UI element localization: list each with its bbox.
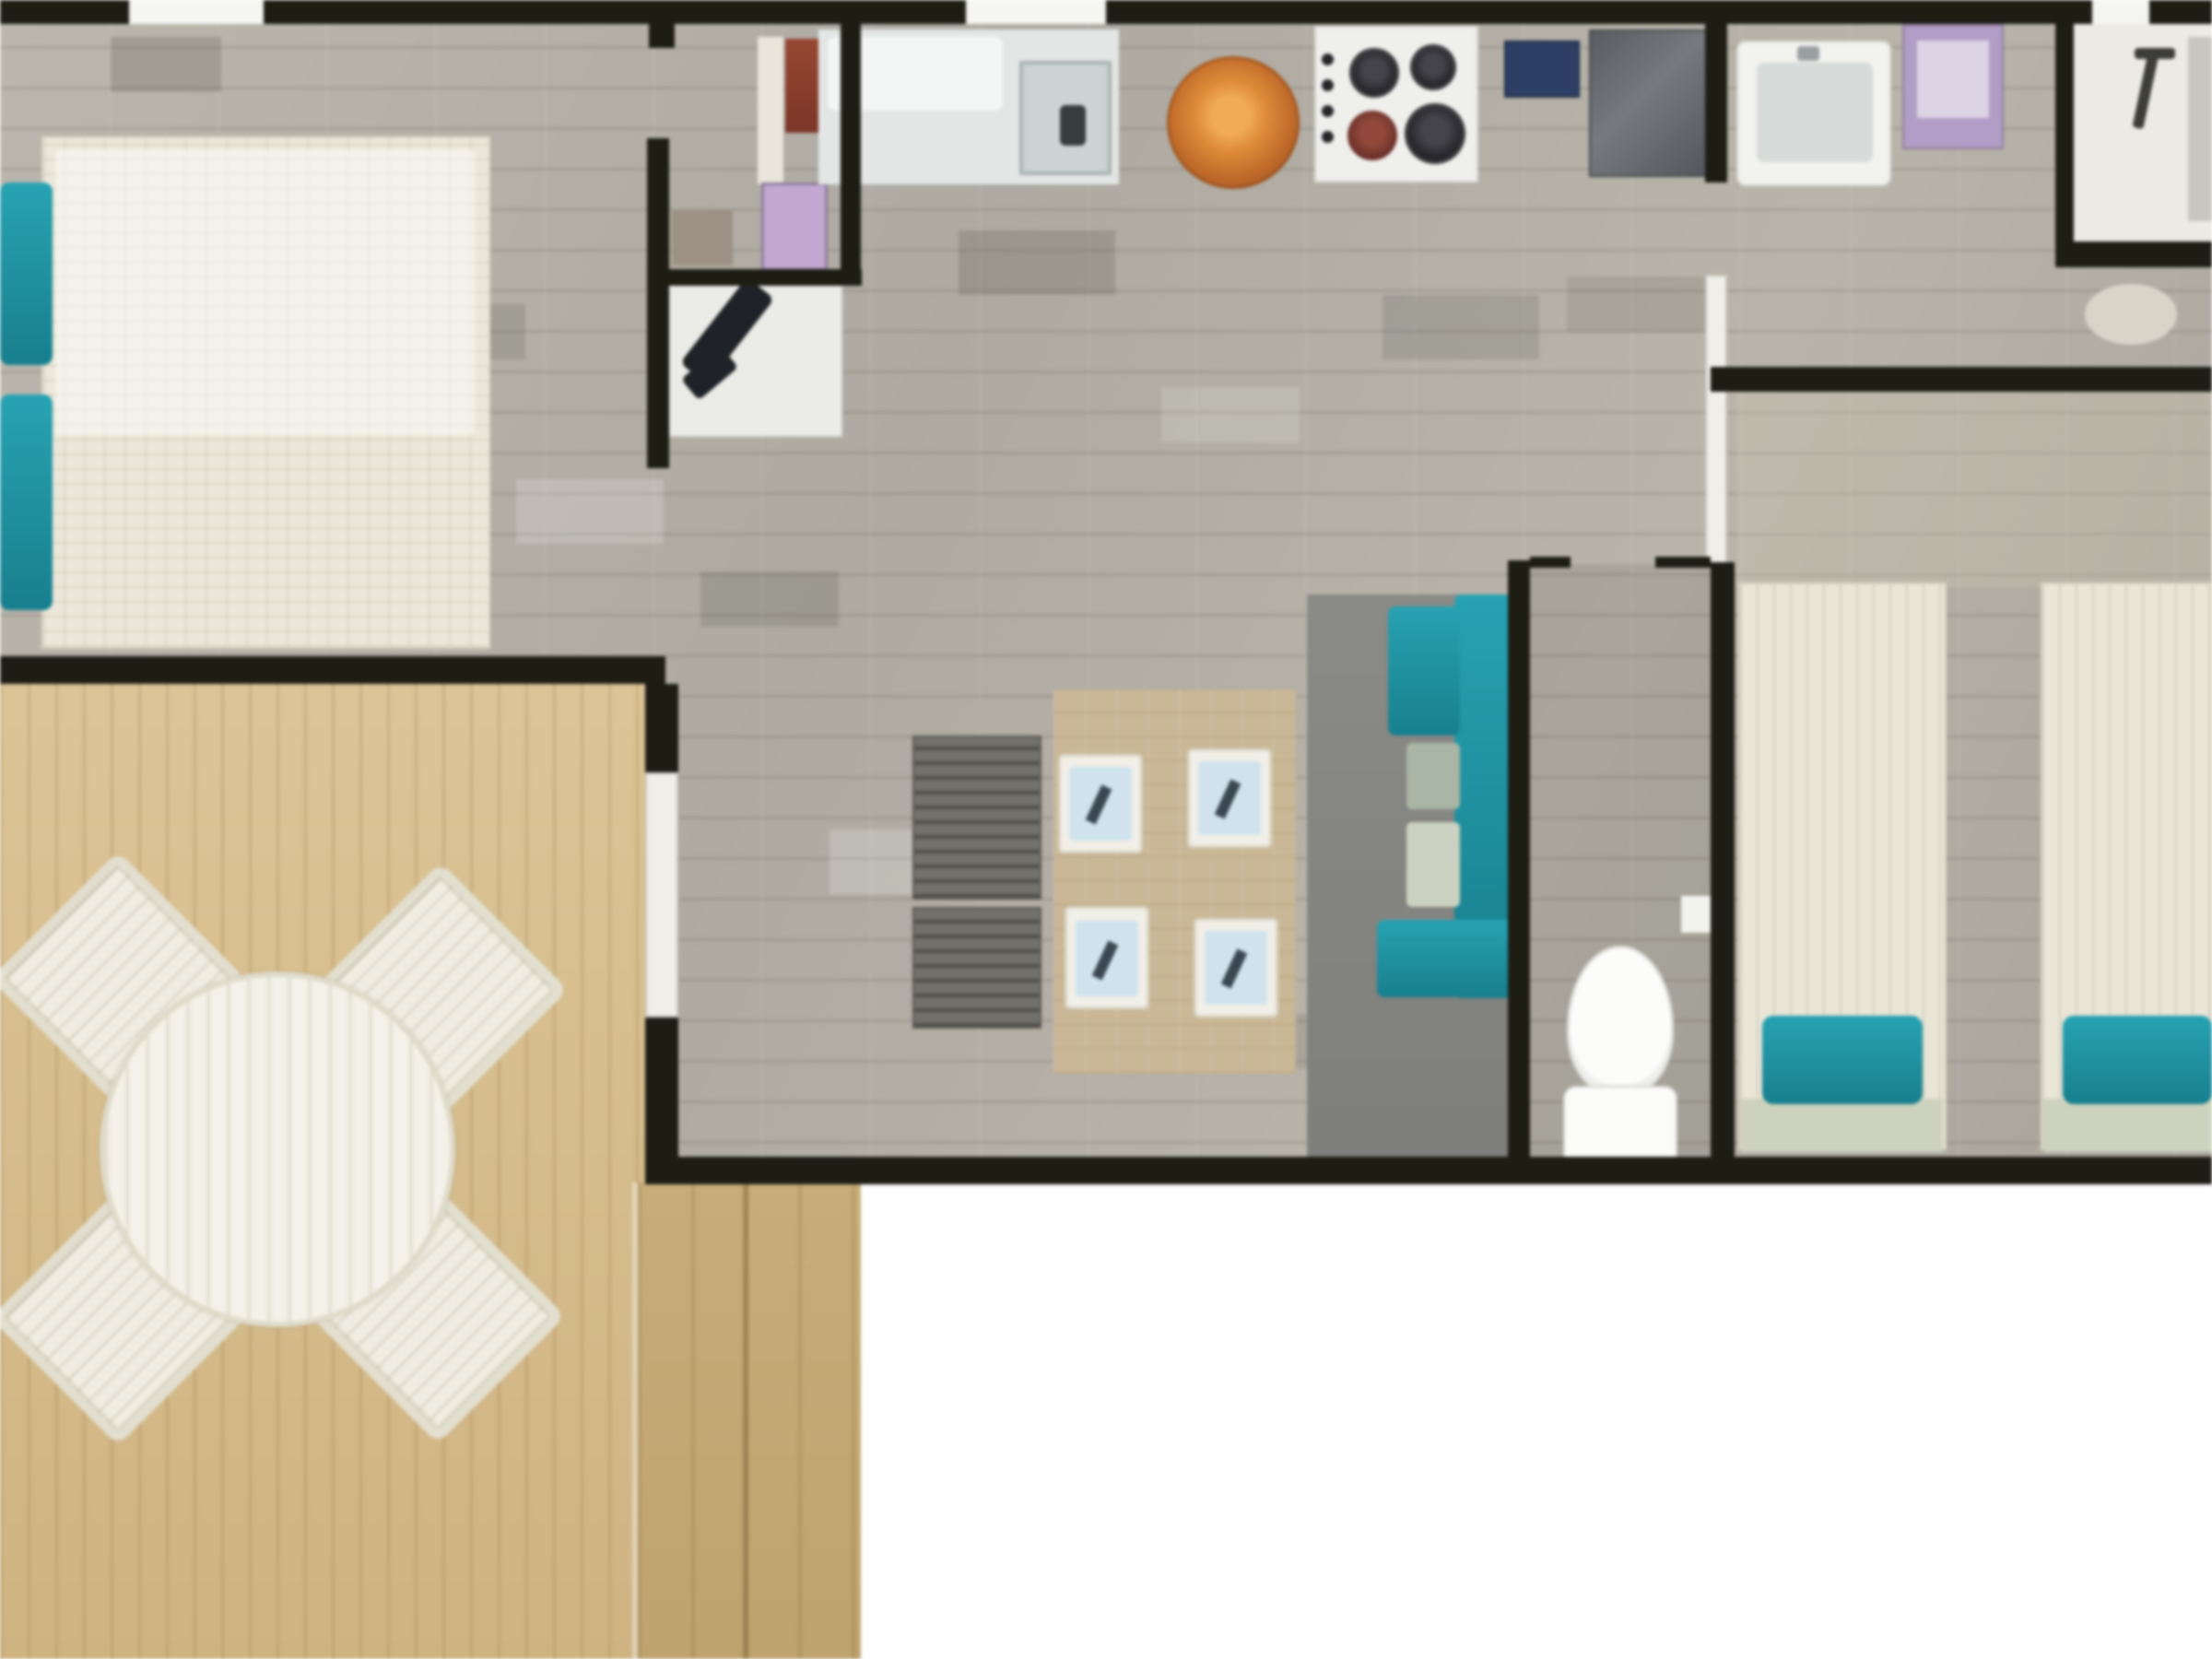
plank-patch	[1382, 295, 1539, 359]
sofa-arm-top	[1388, 606, 1460, 735]
master-bed-duvet	[55, 149, 475, 435]
twin-bed-left-blanket	[1742, 1099, 1943, 1152]
wall-closet-right	[841, 24, 861, 286]
hallway-floor-tint	[1736, 392, 2212, 587]
wall-hall-top	[1711, 367, 2212, 392]
sofa-cushion-1	[1406, 743, 1460, 809]
wall-toilet-right	[1711, 562, 1735, 1184]
hob-burner-tl	[1349, 48, 1399, 98]
wall-shower-vertical	[2055, 9, 2074, 267]
closet-white-strip	[758, 37, 783, 184]
plank-patch	[111, 37, 221, 92]
wall-closet-nub	[649, 24, 675, 48]
twin-bed-left-pillow	[1762, 1016, 1923, 1104]
gas-hob	[1314, 26, 1478, 182]
hob-knob	[1322, 131, 1334, 143]
sofa-cushion-2	[1406, 822, 1460, 907]
wall-toilet-top	[1530, 557, 1571, 568]
hob-burner-bl	[1347, 111, 1397, 160]
window-shower	[2092, 0, 2149, 24]
plank-patch	[516, 479, 664, 544]
wall-bedroom-divider	[647, 138, 669, 468]
dark-slat-table-1	[912, 735, 1041, 900]
hob-knob	[1322, 79, 1334, 91]
lilac-cabinet-inner	[1917, 41, 1989, 118]
shower-fixture-head	[2135, 48, 2175, 59]
door-leaf-hall	[1705, 275, 1727, 564]
wall-toilet-left	[1508, 560, 1530, 1184]
wall-living-left-stub	[645, 1018, 678, 1058]
hob-burner-tr	[1410, 44, 1456, 90]
wall-closet-bottom	[649, 269, 862, 286]
wall-kitchen-bath	[1705, 24, 1727, 182]
kitchen-faucet	[1060, 105, 1086, 146]
wall-toilet-top	[1655, 557, 1711, 568]
dark-slat-table-2	[912, 907, 1041, 1029]
wall-top	[0, 0, 129, 24]
wall-living-left-stub	[645, 684, 678, 772]
deck-round-table	[100, 971, 455, 1327]
hob-burner-br	[1405, 103, 1465, 164]
wall-bottom	[645, 1157, 2212, 1184]
window-over-sink	[966, 0, 1106, 24]
sofa-arm-bottom	[1377, 920, 1513, 997]
closet-gray-box	[672, 210, 733, 265]
plank-patch	[1567, 276, 1705, 332]
wall-top	[264, 0, 966, 24]
closet-lilac-box	[761, 182, 828, 271]
entry-ramp-divider	[743, 1182, 748, 1659]
wall-top	[1106, 0, 2092, 24]
toilet-paper-box	[1681, 896, 1714, 933]
plank-patch	[700, 571, 839, 627]
navy-appliance	[1504, 41, 1580, 98]
plank-patch	[959, 230, 1115, 295]
window-over-bed	[129, 0, 264, 24]
hob-knob	[1322, 105, 1334, 117]
shower-side-shelf	[2188, 37, 2212, 221]
fridge	[1589, 29, 1707, 177]
vestibule-basin-circle	[2085, 284, 2177, 345]
plank-patch	[1161, 387, 1300, 442]
washbasin-inner	[1757, 63, 1873, 162]
floorplan-stage	[0, 0, 2212, 1659]
wall-bedroom-bottom	[0, 656, 665, 684]
wall-shower-horizontal	[2055, 241, 2212, 267]
door-leaf-deck	[645, 772, 678, 1018]
twin-bed-right-pillow	[2063, 1016, 2212, 1104]
master-pillow-bottom	[0, 394, 53, 610]
round-orange-rug	[1167, 56, 1300, 189]
washbasin-faucet	[1797, 46, 1819, 61]
twin-bed-right-blanket	[2044, 1099, 2212, 1152]
master-pillow-top	[0, 182, 53, 365]
wall-top	[2149, 0, 2212, 24]
hob-knob	[1322, 53, 1334, 65]
